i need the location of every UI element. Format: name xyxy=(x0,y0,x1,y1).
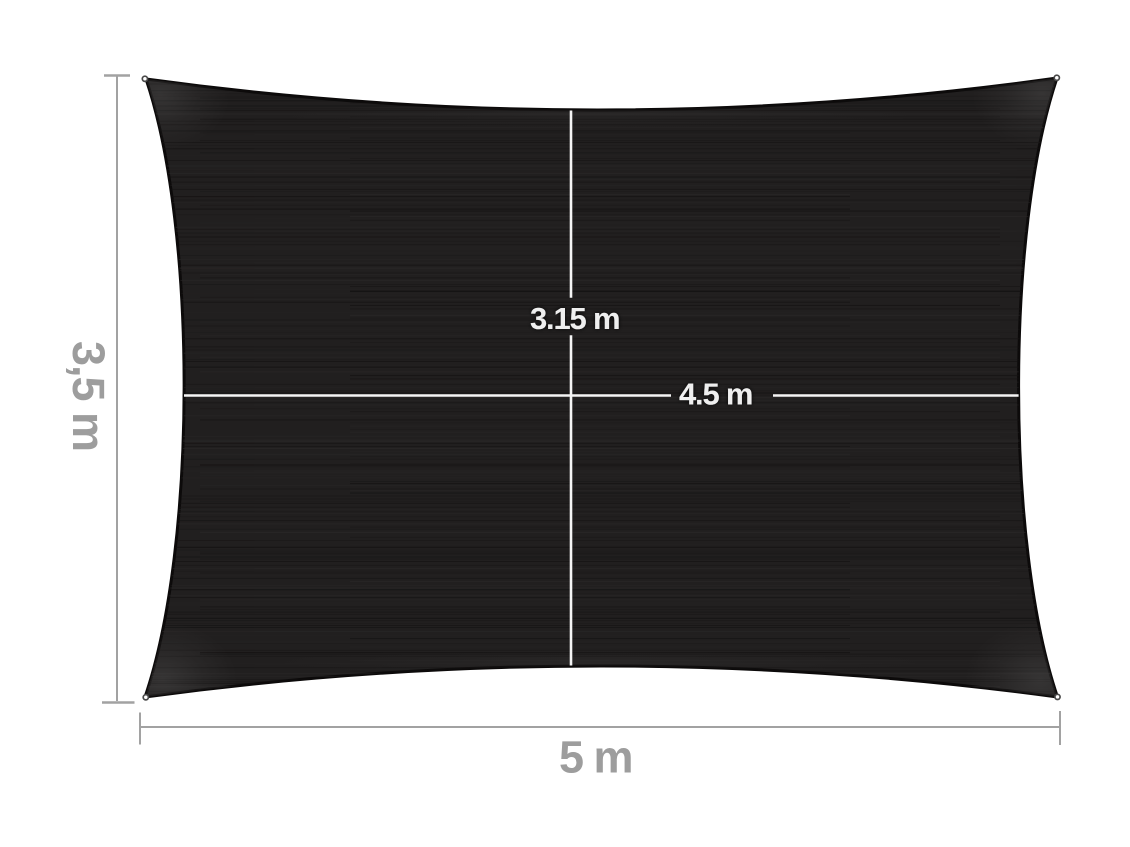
svg-text:3.15 m: 3.15 m xyxy=(530,301,619,336)
svg-text:5 m: 5 m xyxy=(559,732,632,783)
svg-text:4.5 m: 4.5 m xyxy=(679,377,752,412)
svg-text:3,5 m: 3,5 m xyxy=(63,341,114,451)
